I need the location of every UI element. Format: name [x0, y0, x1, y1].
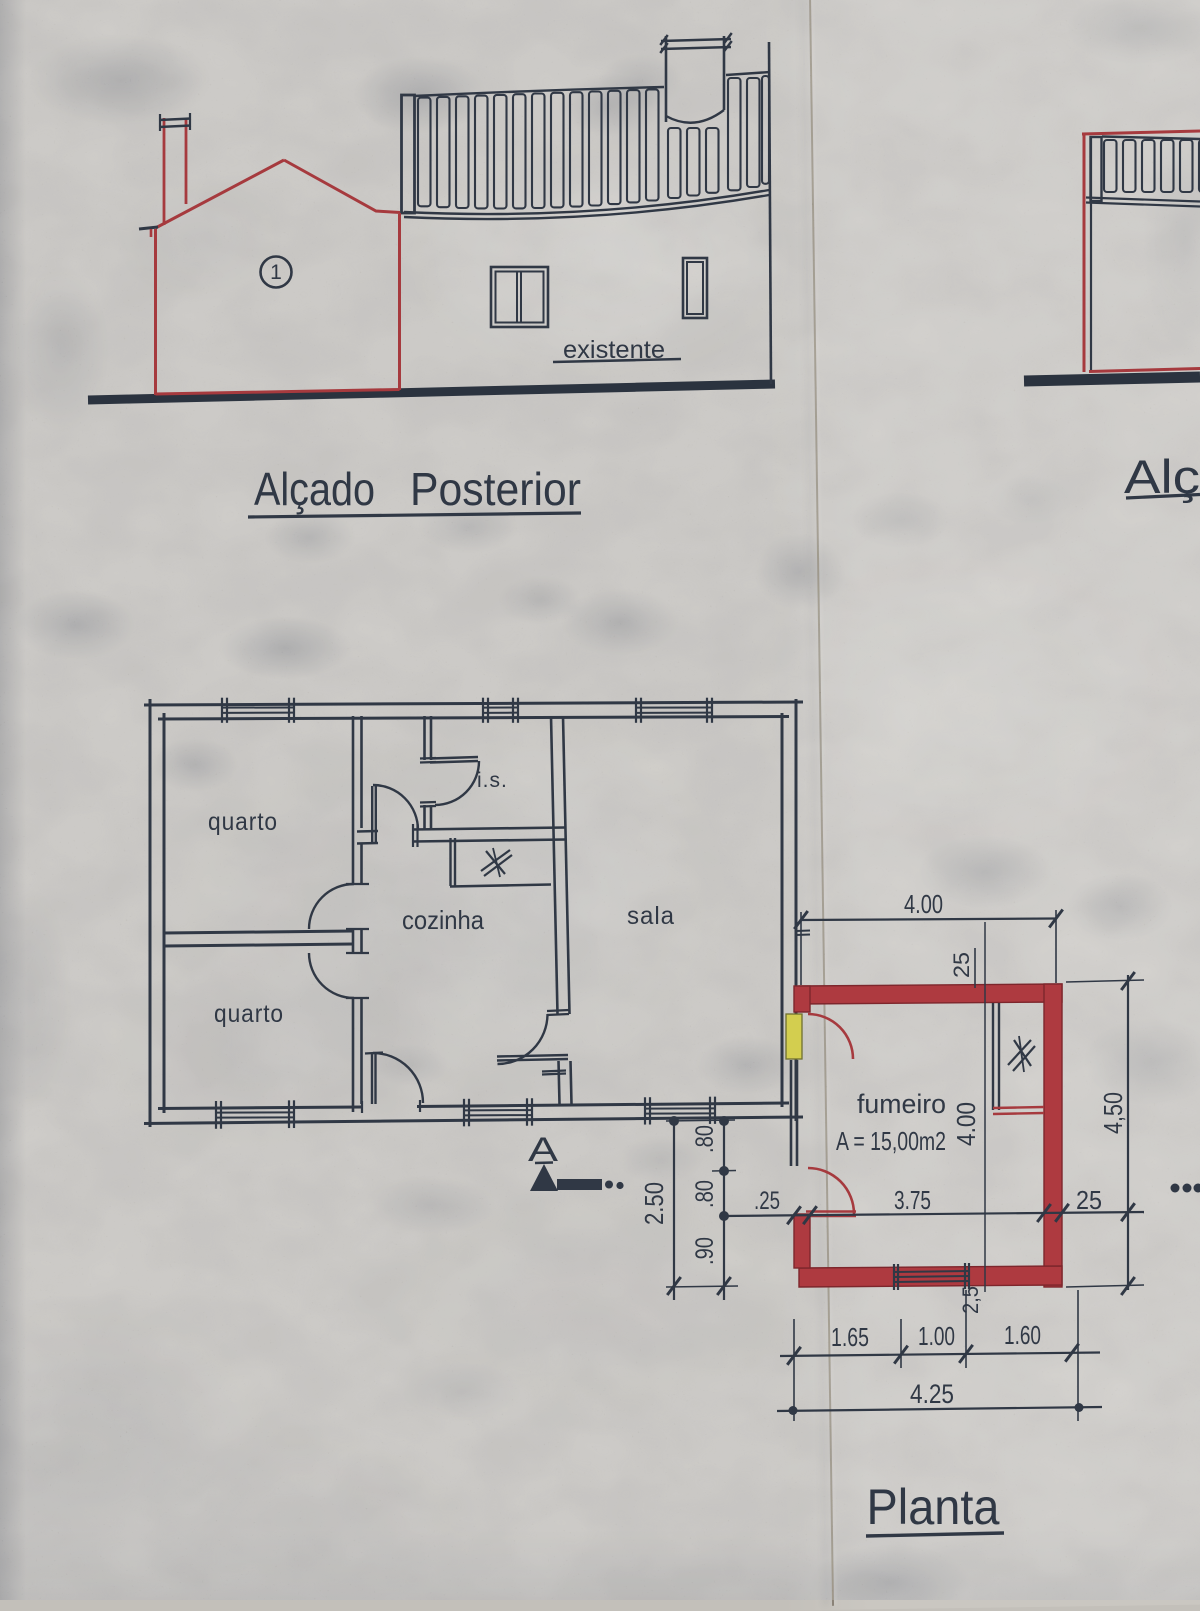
svg-text:.90: .90	[691, 1237, 719, 1265]
svg-text:.80: .80	[691, 1180, 719, 1208]
svg-text:.25: .25	[754, 1187, 780, 1215]
svg-text:cozinha: cozinha	[402, 905, 484, 935]
svg-text:Posterior: Posterior	[410, 463, 581, 515]
svg-text:Planta: Planta	[867, 1479, 1000, 1535]
svg-text:1: 1	[270, 261, 282, 284]
svg-text:4.00: 4.00	[904, 889, 943, 919]
svg-text:4.25: 4.25	[910, 1379, 954, 1409]
svg-text:quarto: quarto	[214, 1000, 284, 1028]
svg-text:1.65: 1.65	[831, 1322, 869, 1352]
svg-text:25: 25	[949, 952, 974, 978]
svg-text:3.75: 3.75	[894, 1185, 931, 1215]
svg-text:25: 25	[1076, 1185, 1102, 1215]
svg-text:4,50: 4,50	[1098, 1092, 1128, 1134]
svg-text:2.50: 2.50	[639, 1182, 669, 1225]
svg-text:i.s.: i.s.	[477, 769, 508, 792]
svg-text:2,5: 2,5	[958, 1286, 983, 1314]
svg-text:fumeiro: fumeiro	[857, 1089, 946, 1119]
svg-text:4.00: 4.00	[951, 1102, 981, 1146]
svg-text:quarto: quarto	[208, 808, 278, 836]
svg-text:sala: sala	[627, 902, 675, 930]
svg-text:.80: .80	[691, 1125, 719, 1153]
svg-text:A = 15,00m2: A = 15,00m2	[836, 1126, 946, 1156]
svg-text:Alçado: Alçado	[254, 463, 375, 515]
svg-text:1.60: 1.60	[1004, 1320, 1041, 1350]
svg-text:1.00: 1.00	[918, 1321, 955, 1351]
